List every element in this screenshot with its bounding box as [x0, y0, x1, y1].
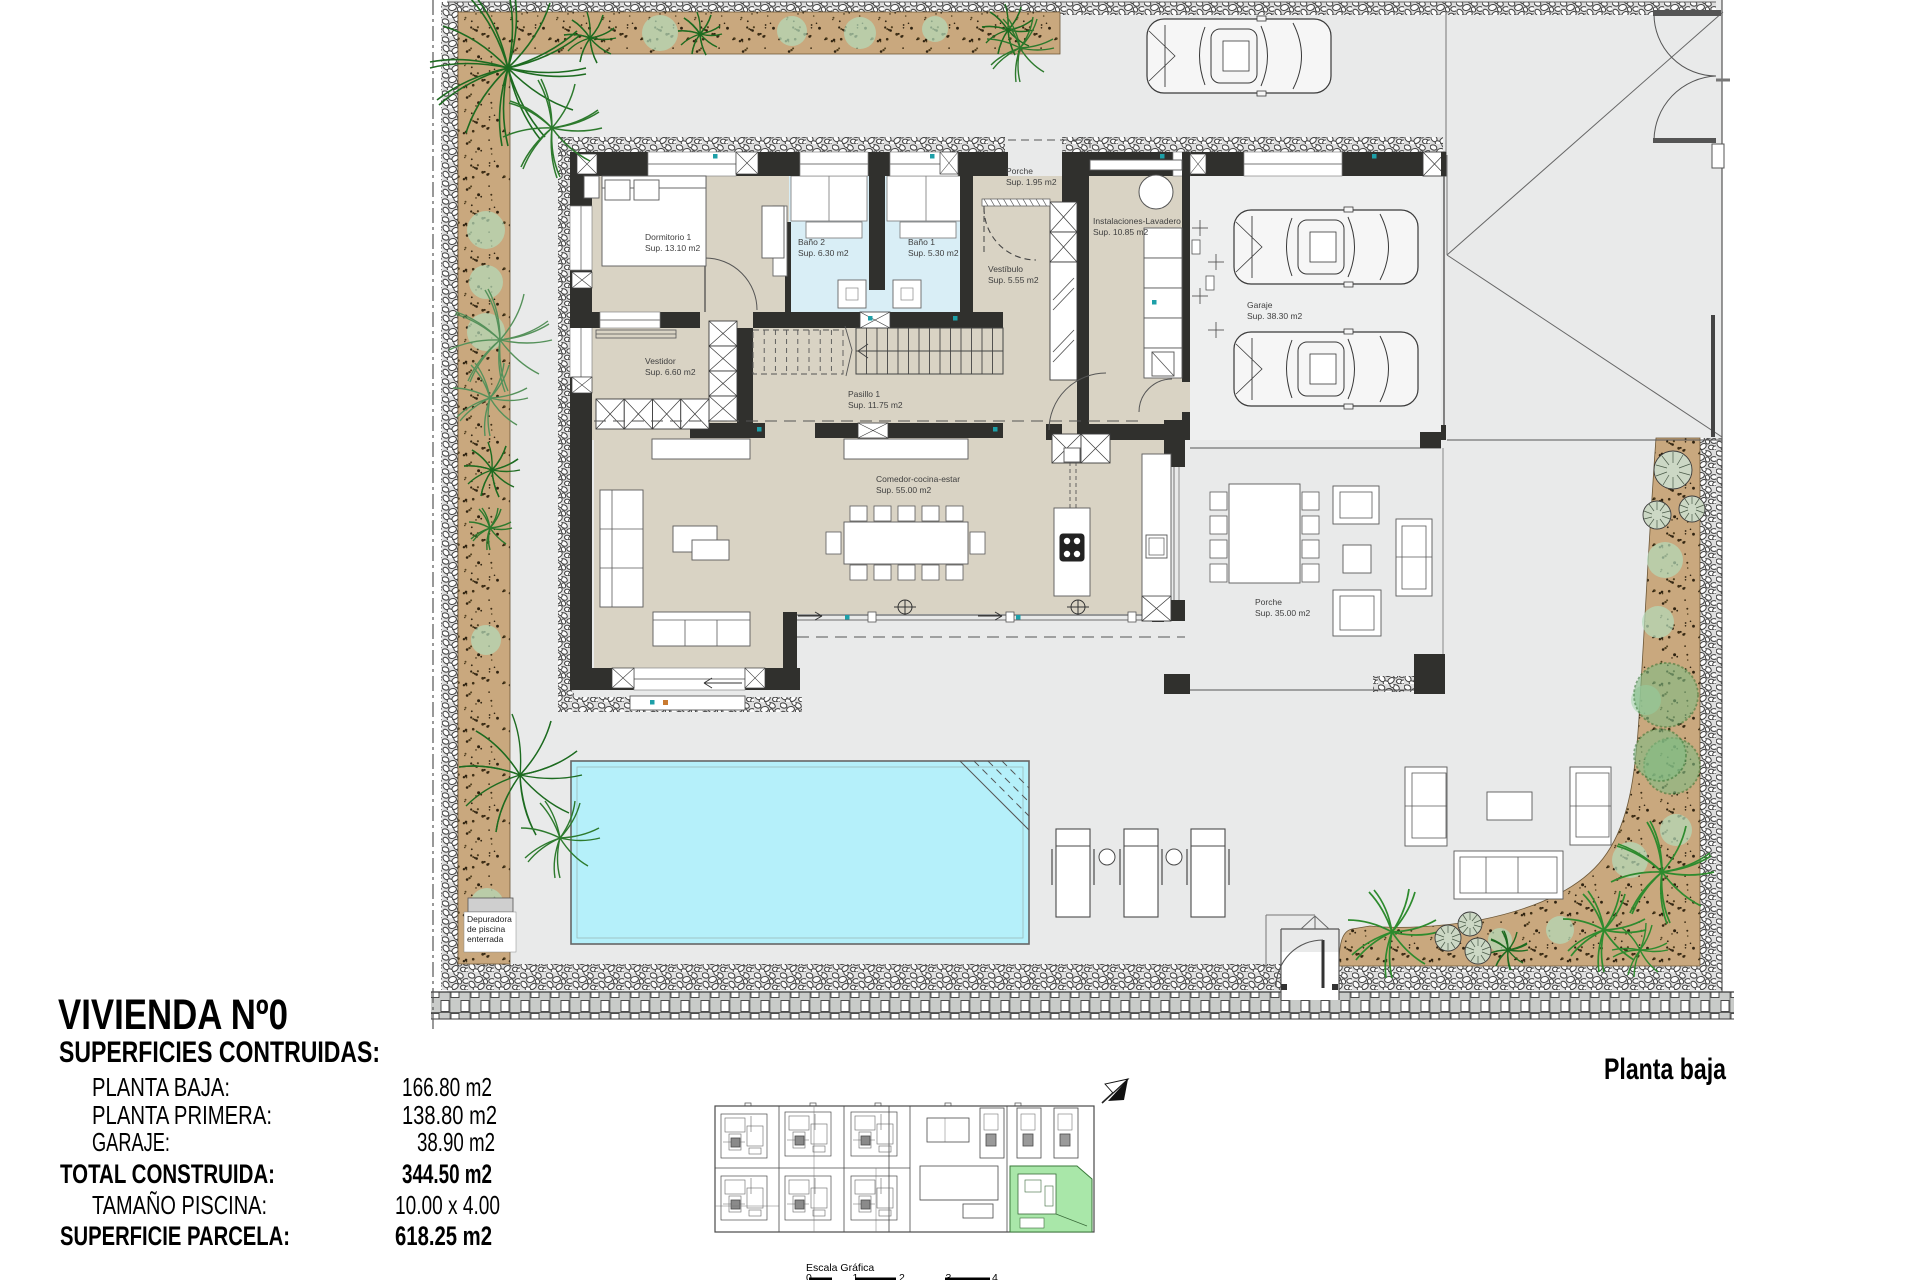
svg-text:Sup. 35.00 m2: Sup. 35.00 m2 — [1255, 608, 1311, 618]
svg-text:Sup. 1.95 m2: Sup. 1.95 m2 — [1006, 177, 1057, 187]
svg-text:Escala Gráfica: Escala Gráfica — [806, 1262, 874, 1274]
svg-text:Baño 2: Baño 2 — [798, 237, 825, 247]
svg-text:PLANTA BAJA:: PLANTA BAJA: — [92, 1072, 230, 1102]
svg-text:166.80 m2: 166.80 m2 — [402, 1072, 492, 1102]
svg-text:PLANTA PRIMERA:: PLANTA PRIMERA: — [92, 1100, 272, 1130]
svg-text:Garaje: Garaje — [1247, 300, 1273, 310]
svg-text:Porche: Porche — [1255, 597, 1282, 607]
svg-text:Sup. 10.85 m2: Sup. 10.85 m2 — [1093, 227, 1149, 237]
svg-text:Instalaciones-Lavadero: Instalaciones-Lavadero — [1093, 216, 1181, 226]
svg-text:Depuradora: Depuradora — [467, 914, 512, 924]
svg-text:4: 4 — [992, 1272, 998, 1280]
svg-text:GARAJE:: GARAJE: — [92, 1127, 170, 1157]
svg-text:TAMAÑO PISCINA:: TAMAÑO PISCINA: — [92, 1190, 267, 1220]
svg-text:138.80 m2: 138.80 m2 — [402, 1100, 497, 1130]
svg-text:Vestíbulo: Vestíbulo — [988, 264, 1023, 274]
svg-text:de piscina: de piscina — [467, 924, 506, 934]
svg-text:38.90 m2: 38.90 m2 — [417, 1127, 495, 1157]
svg-text:Sup. 6.60 m2: Sup. 6.60 m2 — [645, 367, 696, 377]
svg-text:Sup. 6.30 m2: Sup. 6.30 m2 — [798, 248, 849, 258]
svg-text:Sup. 5.30 m2: Sup. 5.30 m2 — [908, 248, 959, 258]
svg-text:Porche: Porche — [1006, 166, 1033, 176]
svg-text:Dormitorio 1: Dormitorio 1 — [645, 232, 692, 242]
svg-text:618.25 m2: 618.25 m2 — [395, 1221, 492, 1251]
svg-text:SUPERFICIE PARCELA:: SUPERFICIE PARCELA: — [60, 1221, 290, 1251]
svg-text:enterrada: enterrada — [467, 934, 504, 944]
svg-text:Pasillo 1: Pasillo 1 — [848, 389, 880, 399]
svg-text:Sup. 13.10 m2: Sup. 13.10 m2 — [645, 243, 701, 253]
svg-text:344.50 m2: 344.50 m2 — [402, 1159, 492, 1189]
svg-text:Comedor-cocina-estar: Comedor-cocina-estar — [876, 474, 960, 484]
svg-text:Sup. 11.75 m2: Sup. 11.75 m2 — [848, 400, 903, 410]
svg-text:TOTAL CONSTRUIDA:: TOTAL CONSTRUIDA: — [60, 1159, 275, 1189]
svg-text:VIVIENDA Nº0: VIVIENDA Nº0 — [58, 991, 288, 1039]
svg-text:10.00 x 4.00: 10.00 x 4.00 — [395, 1190, 500, 1220]
svg-text:Planta baja: Planta baja — [1604, 1053, 1726, 1086]
svg-text:Vestidor: Vestidor — [645, 356, 676, 366]
svg-text:SUPERFICIES CONTRUIDAS:: SUPERFICIES CONTRUIDAS: — [59, 1036, 380, 1069]
svg-text:Baño 1: Baño 1 — [908, 237, 935, 247]
svg-text:Sup. 5.55 m2: Sup. 5.55 m2 — [988, 275, 1039, 285]
svg-text:Sup. 55.00 m2: Sup. 55.00 m2 — [876, 485, 932, 495]
svg-text:2: 2 — [899, 1272, 905, 1280]
svg-text:Sup. 38.30 m2: Sup. 38.30 m2 — [1247, 311, 1303, 321]
